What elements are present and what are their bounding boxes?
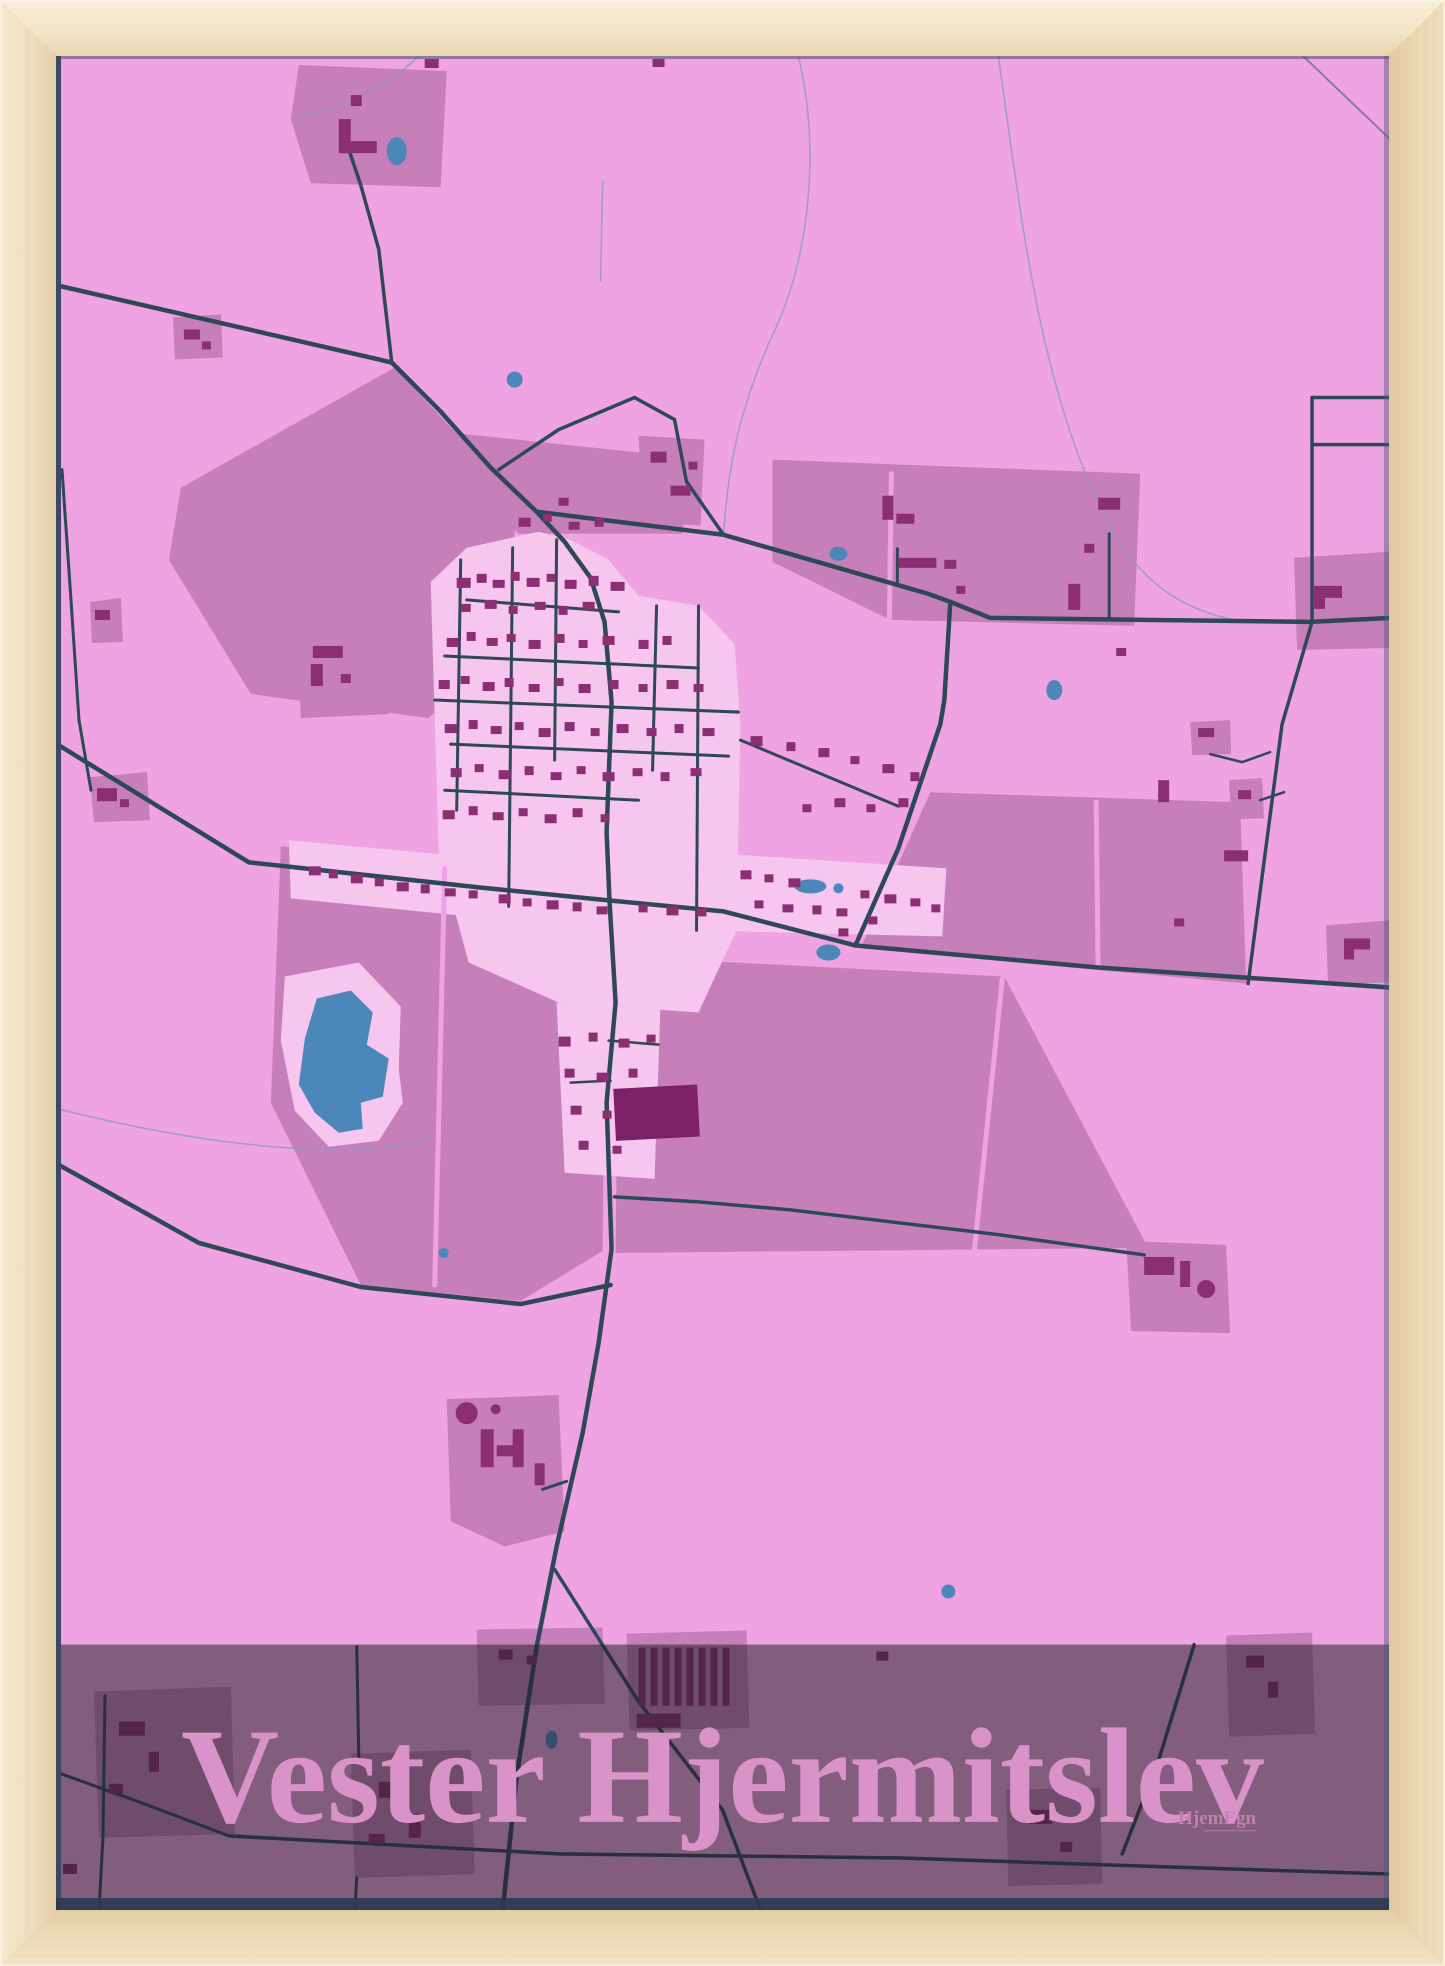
framed-map-poster: Vester Hjermitslev HjemEgn [0,0,1445,1966]
frame-bottom [0,1910,1445,1966]
frame-left [0,0,56,1966]
poster-canvas: Vester Hjermitslev HjemEgn [56,56,1389,1910]
frame-top [0,0,1445,56]
frame-right [1389,0,1445,1966]
brand-logo-underline [1204,1830,1256,1832]
city-map: Vester Hjermitslev HjemEgn [56,56,1389,1910]
brand-logo: HjemEgn [1178,1808,1256,1829]
poster-title: Vester Hjermitslev [181,1702,1265,1852]
